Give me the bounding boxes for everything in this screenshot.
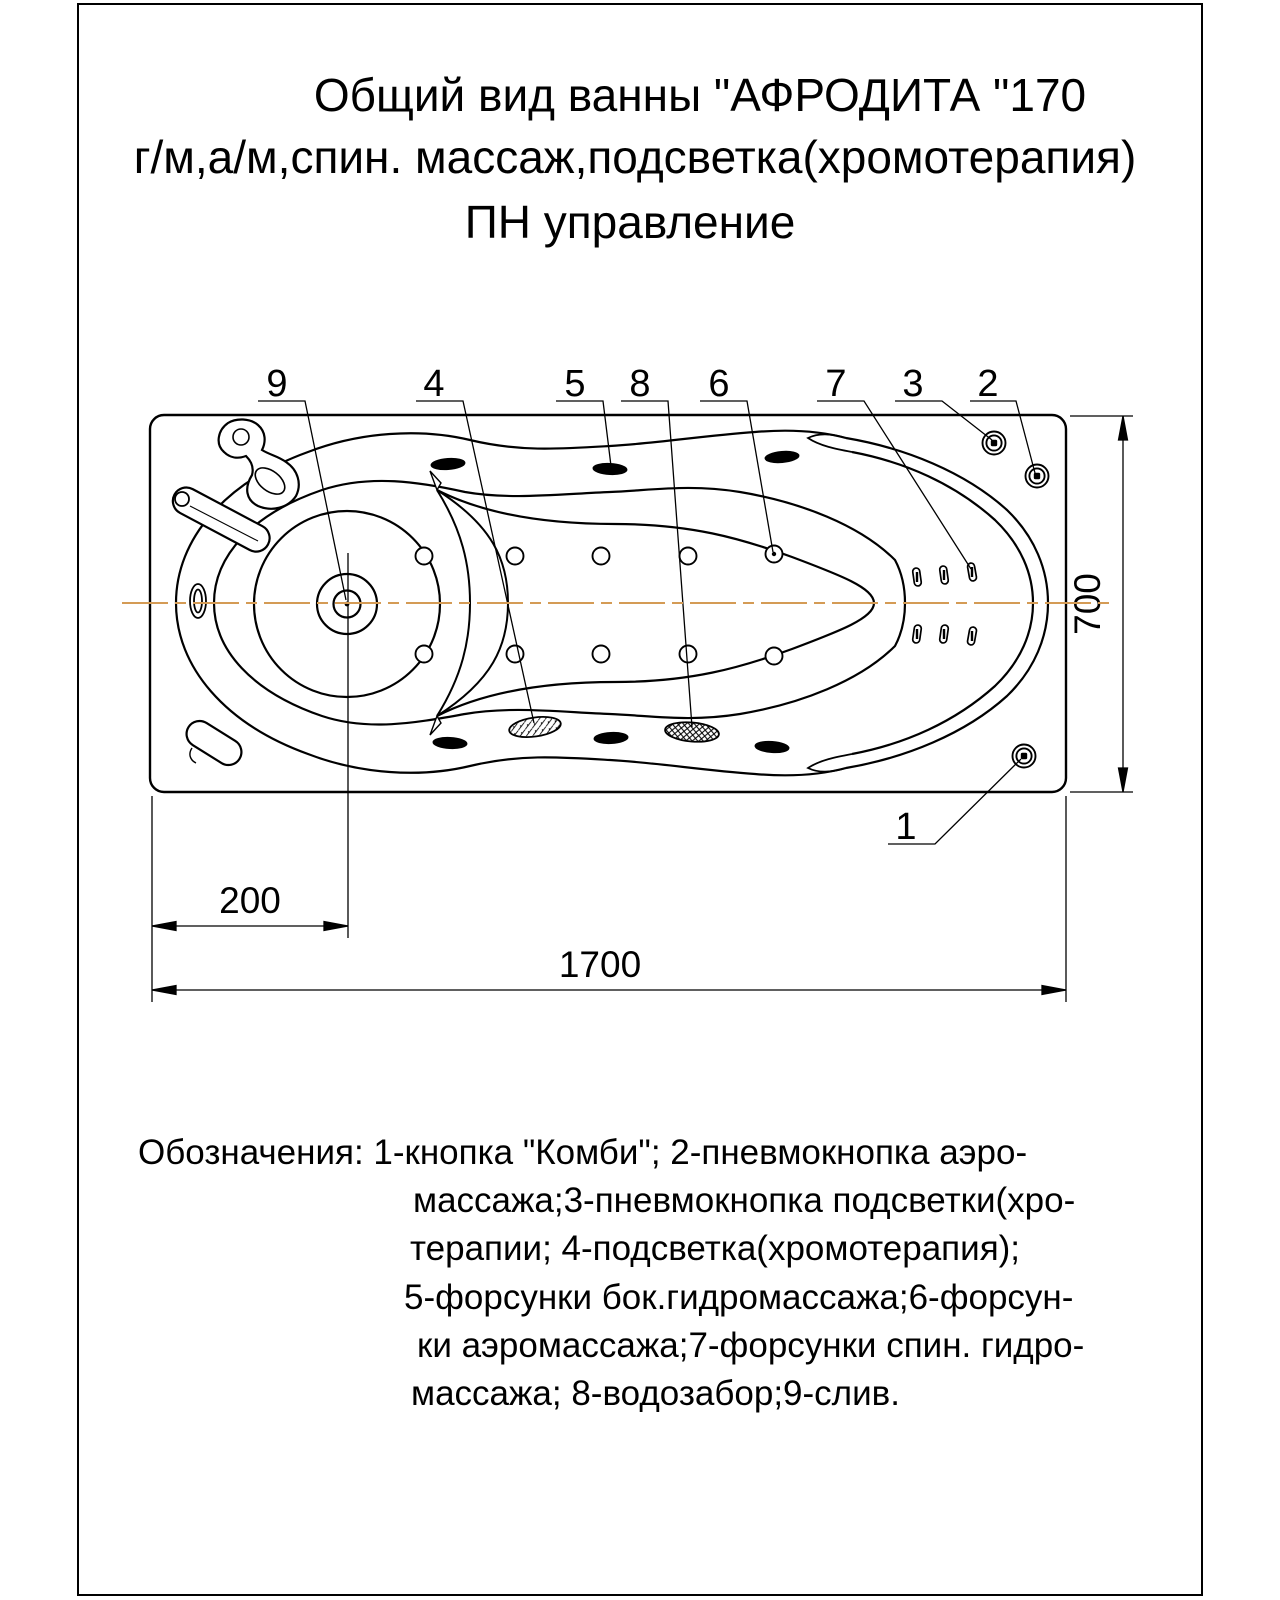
callout-8: 8 (629, 363, 650, 405)
legend-line-2: массажа;3-пневмокнопка подсветки(хро- (413, 1183, 1075, 1218)
callout-3: 3 (902, 363, 923, 405)
drawing-sheet: Общий вид ванны "АФРОДИТА "170 г/м,а/м,с… (0, 0, 1280, 1600)
legend-line-6: массажа; 8-водозабор;9-слив. (411, 1376, 900, 1411)
callout-1: 1 (895, 806, 916, 848)
callout-5: 5 (564, 363, 585, 405)
dim-drain-offset: 200 (219, 880, 281, 921)
callout-6: 6 (708, 363, 729, 405)
callout-4: 4 (423, 363, 444, 405)
callout-9: 9 (266, 363, 287, 405)
legend-line-3: терапии; 4-подсветка(хромотерапия); (410, 1231, 1020, 1266)
callout-2: 2 (977, 363, 998, 405)
legend-line-5: ки аэромассажа;7-форсунки спин. гидро- (417, 1328, 1084, 1363)
dim-length: 1700 (559, 944, 641, 985)
legend-line-1: Обозначения: 1-кнопка "Комби"; 2-пневмок… (138, 1135, 1027, 1170)
legend-line-4: 5-форсунки бок.гидромассажа;6-форсун- (404, 1280, 1073, 1315)
callout-7: 7 (825, 363, 846, 405)
button-aero (1026, 465, 1049, 488)
